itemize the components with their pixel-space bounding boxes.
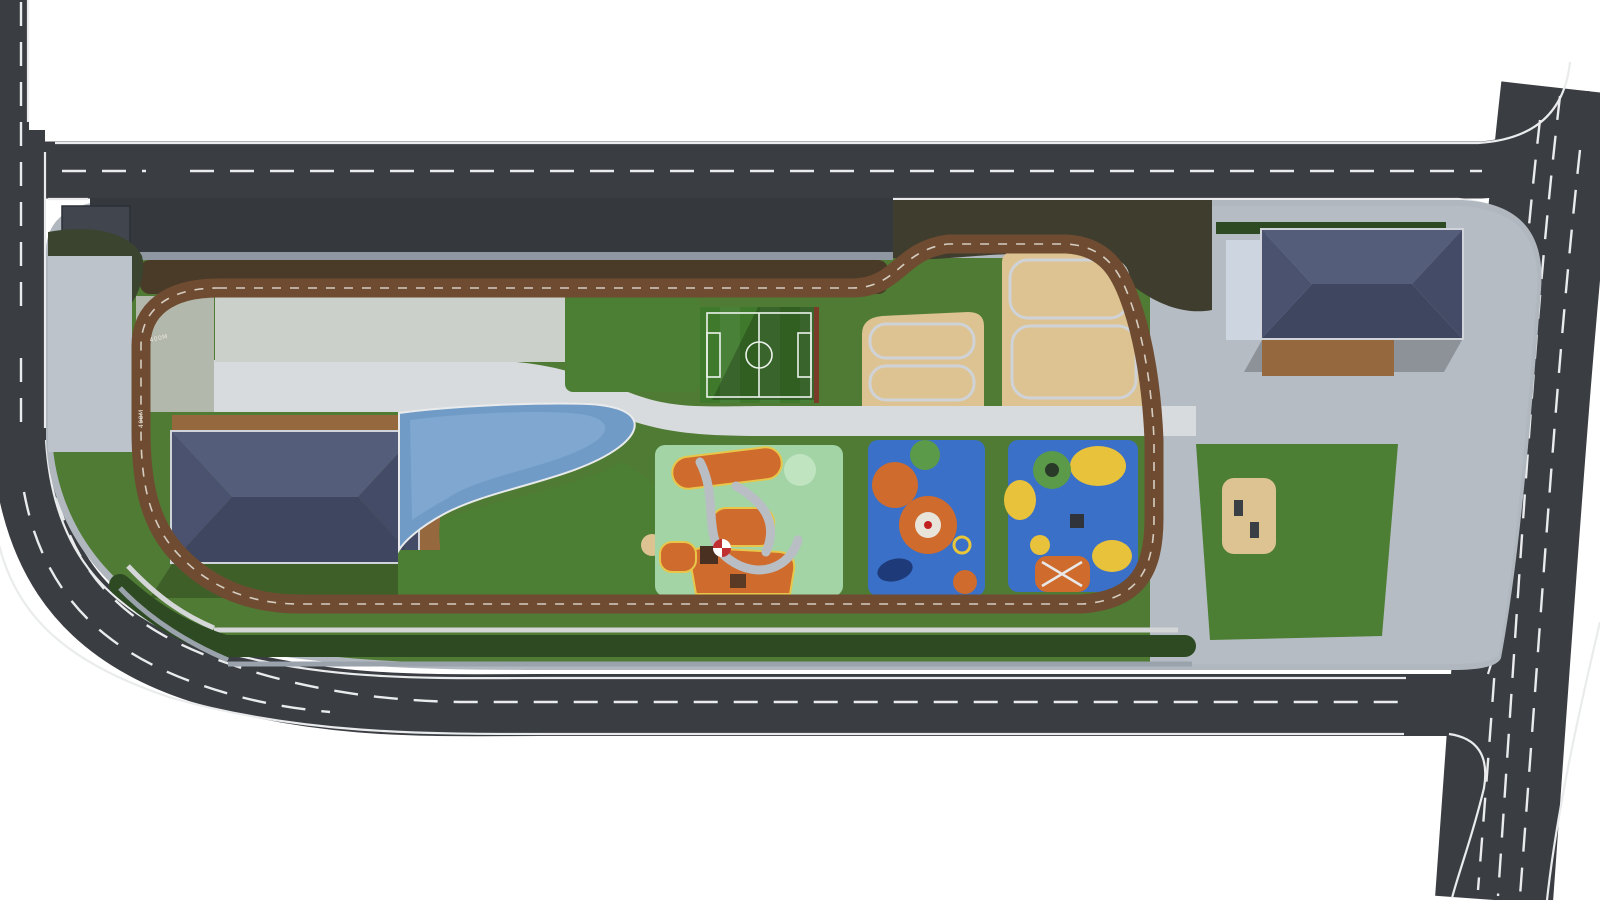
yellow-blob — [1092, 540, 1132, 572]
orange-pad — [953, 570, 977, 594]
play-structure — [730, 574, 746, 588]
garden-gravel — [215, 296, 565, 362]
picnic-table — [1234, 500, 1243, 516]
orange-pad — [872, 462, 918, 508]
play-structure — [1070, 514, 1084, 528]
parking-curb — [90, 252, 893, 260]
site-plan-canvas: 400M 400M — [0, 0, 1600, 900]
west-entry-plaza — [48, 256, 132, 452]
road-top — [40, 90, 1561, 170]
track-distance-marker: 400M — [138, 409, 145, 428]
yellow-blob — [1070, 446, 1126, 486]
parking-lot — [58, 198, 893, 260]
climber-dome — [1045, 463, 1059, 477]
green-pad — [910, 440, 940, 470]
park: 400M 400M — [46, 198, 1542, 670]
play-island — [660, 542, 696, 572]
building-east-deck — [1262, 340, 1394, 376]
rock-bed — [1226, 240, 1260, 340]
picnic-sand-pit — [1222, 478, 1276, 554]
field-edge-band — [814, 307, 819, 403]
yellow-blob — [1004, 480, 1036, 520]
amphitheater — [1196, 444, 1398, 640]
yellow-blob — [1030, 535, 1050, 555]
picnic-table — [1250, 522, 1259, 538]
parking-asphalt — [90, 198, 893, 256]
carousel-center — [924, 521, 932, 529]
playground-east — [1004, 440, 1138, 592]
playground-central — [868, 440, 985, 596]
garden-lawn-east — [565, 296, 700, 392]
playground-toddler — [655, 445, 843, 596]
soccer-field — [700, 307, 819, 403]
play-mound — [784, 454, 816, 486]
site-plan: 400M 400M — [0, 0, 1600, 900]
